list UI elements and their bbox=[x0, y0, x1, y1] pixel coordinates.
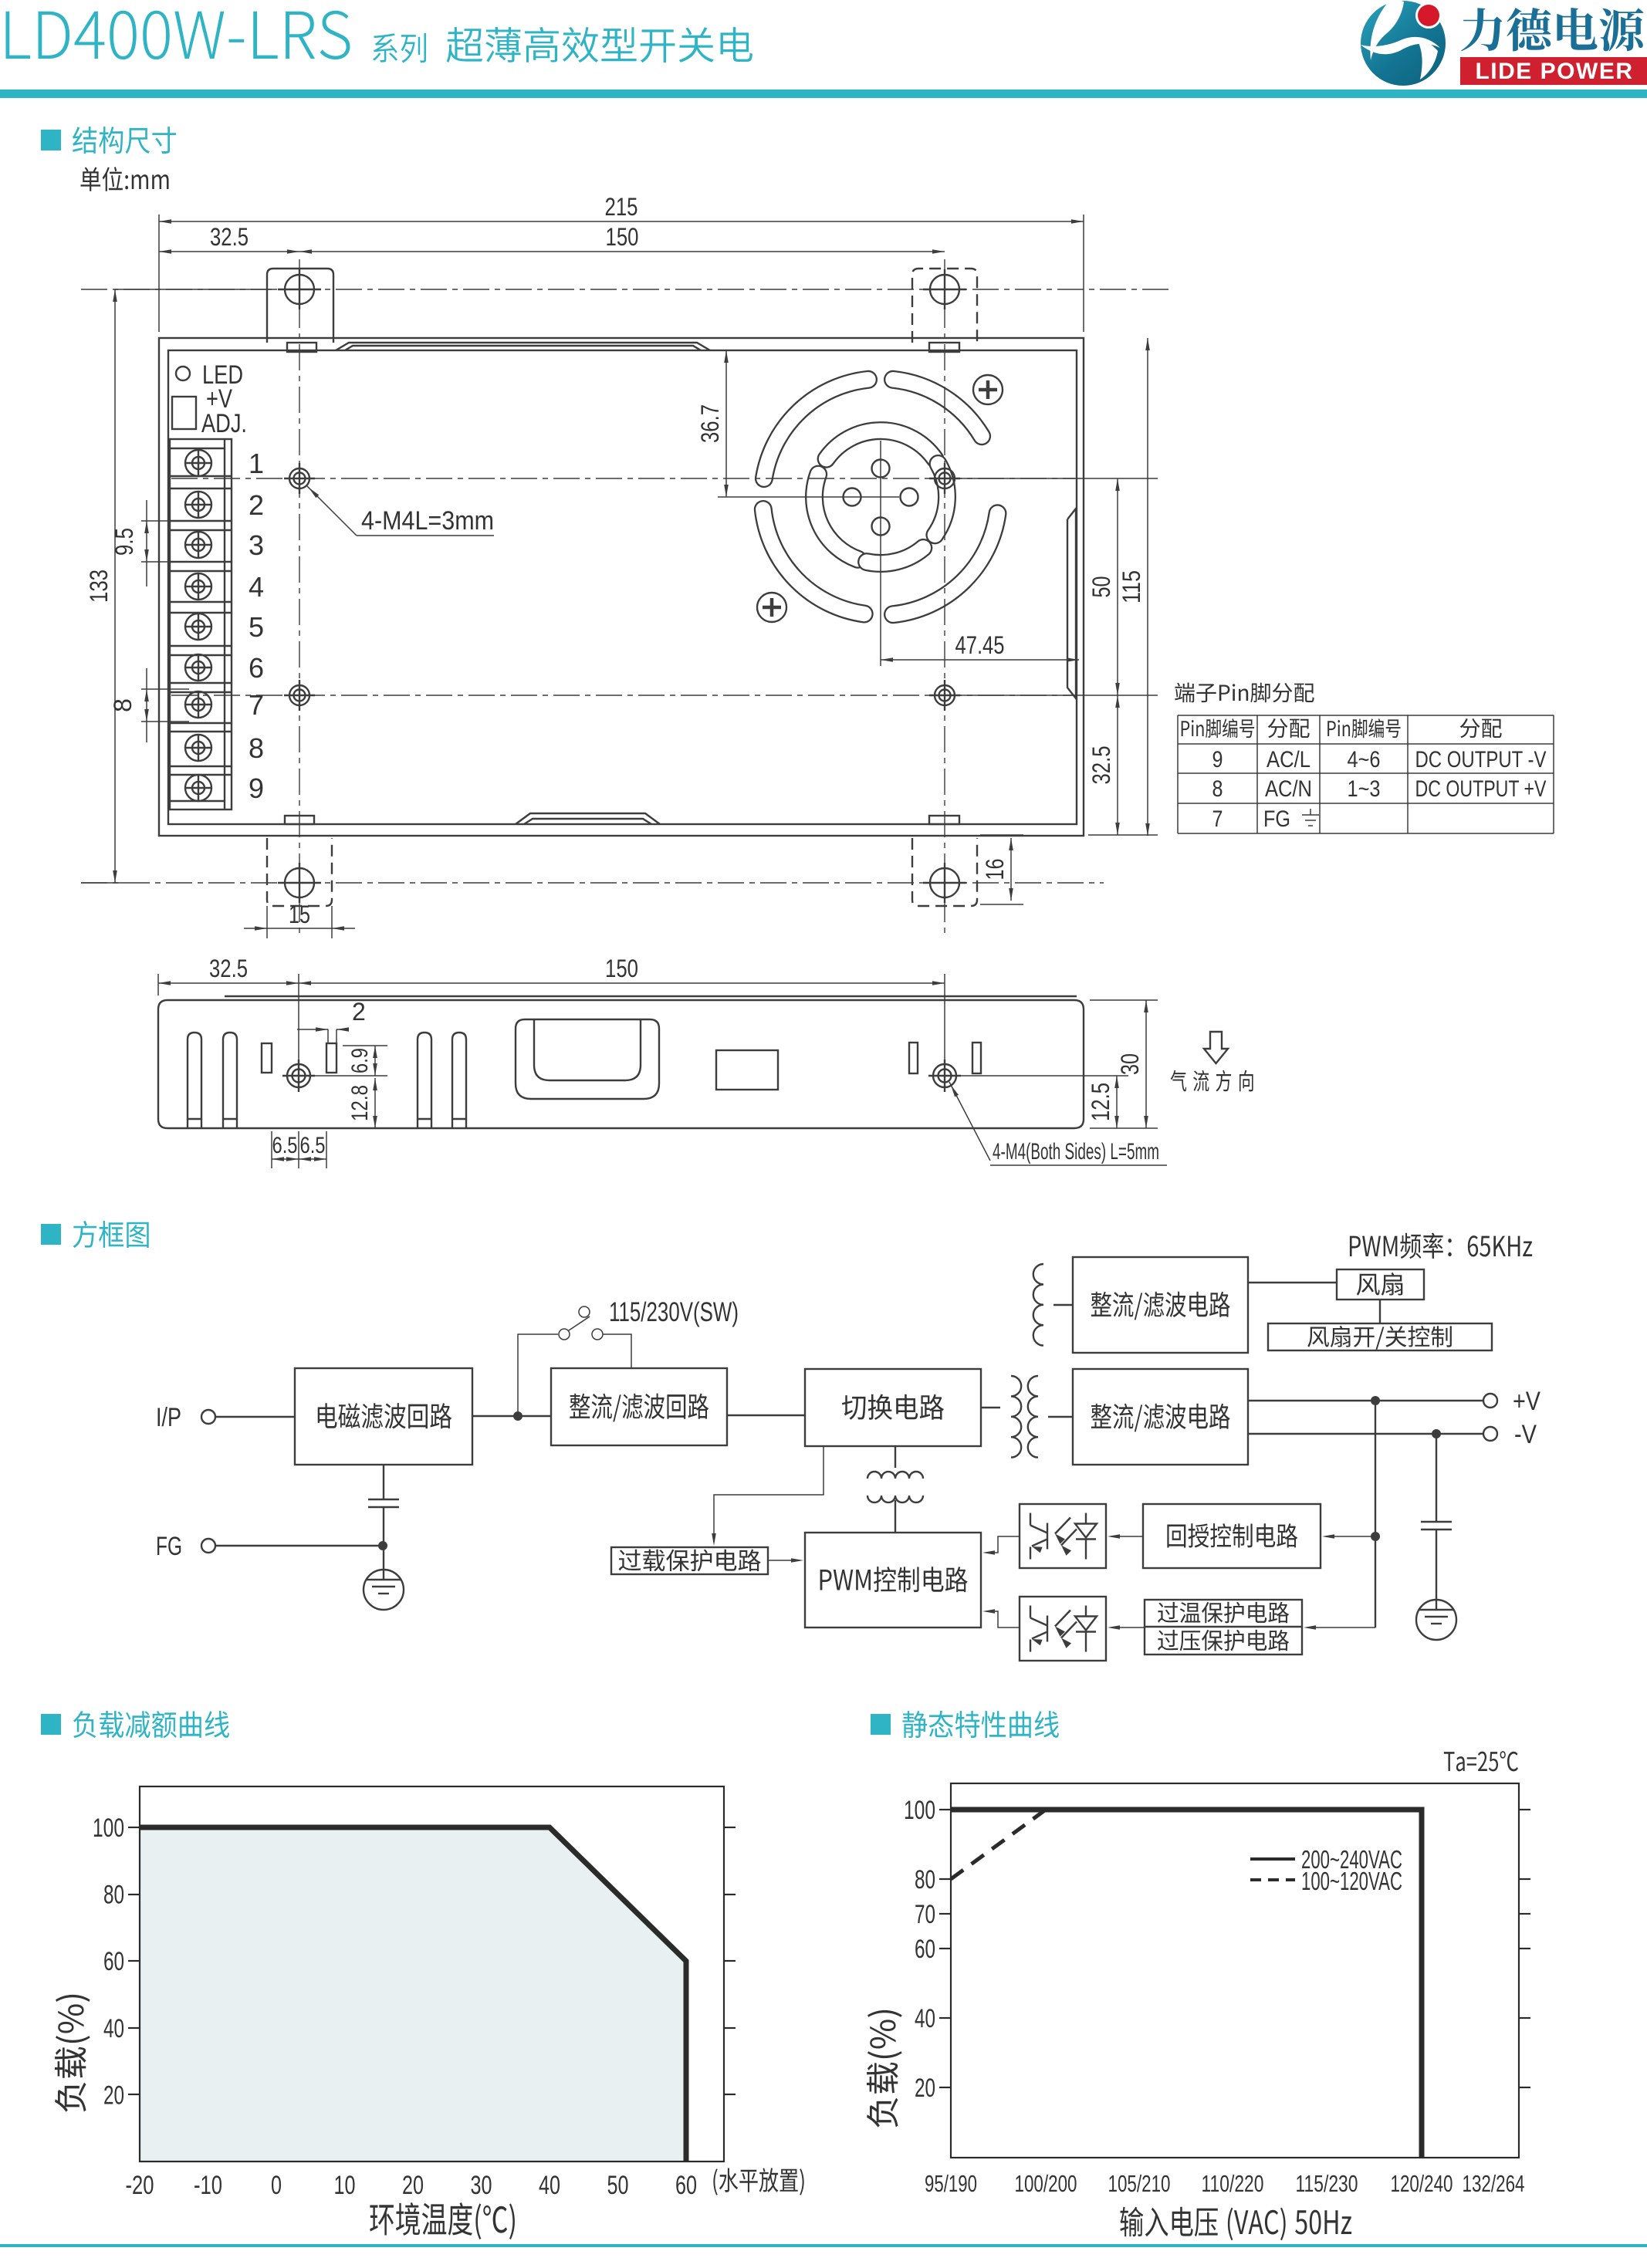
svg-text:40: 40 bbox=[103, 2014, 124, 2043]
svg-text:100~120VAC: 100~120VAC bbox=[1301, 1867, 1402, 1895]
svg-text:12.8: 12.8 bbox=[347, 1085, 373, 1121]
svg-text:30: 30 bbox=[471, 2171, 492, 2200]
svg-text:6.5: 6.5 bbox=[300, 1133, 326, 1158]
svg-text:60: 60 bbox=[915, 1935, 935, 1964]
svg-text:110/220: 110/220 bbox=[1202, 2170, 1264, 2197]
svg-text:20: 20 bbox=[915, 2074, 935, 2103]
svg-text:ADJ.: ADJ. bbox=[201, 409, 247, 438]
svg-text:AC/L: AC/L bbox=[1267, 747, 1310, 772]
svg-text:6.9: 6.9 bbox=[347, 1048, 373, 1073]
svg-text:100: 100 bbox=[93, 1813, 124, 1843]
svg-text:6.5: 6.5 bbox=[272, 1133, 298, 1158]
svg-text:20: 20 bbox=[402, 2171, 424, 2200]
svg-text:115: 115 bbox=[1118, 570, 1145, 603]
svg-text:132/264: 132/264 bbox=[1463, 2170, 1525, 2197]
svg-text:-10: -10 bbox=[194, 2171, 222, 2200]
svg-text:7: 7 bbox=[1212, 806, 1223, 832]
svg-text:20: 20 bbox=[103, 2080, 124, 2110]
svg-text:4-M4L=3mm: 4-M4L=3mm bbox=[361, 506, 494, 536]
svg-text:80: 80 bbox=[915, 1865, 935, 1895]
svg-text:4-M4(Both Sides) L=5mm: 4-M4(Both Sides) L=5mm bbox=[993, 1139, 1159, 1164]
svg-text:7: 7 bbox=[249, 689, 264, 721]
svg-text:120/240: 120/240 bbox=[1391, 2170, 1453, 2197]
svg-text:100/200: 100/200 bbox=[1015, 2170, 1077, 2197]
svg-text:50: 50 bbox=[607, 2171, 629, 2200]
svg-text:DC OUTPUT -V: DC OUTPUT -V bbox=[1415, 747, 1547, 772]
svg-text:50: 50 bbox=[1087, 576, 1115, 598]
svg-text:115/230V(SW): 115/230V(SW) bbox=[609, 1297, 739, 1327]
svg-text:40: 40 bbox=[915, 2004, 935, 2033]
svg-text:8: 8 bbox=[1212, 776, 1223, 802]
svg-text:4~6: 4~6 bbox=[1348, 747, 1381, 772]
svg-text:80: 80 bbox=[103, 1881, 124, 1910]
svg-text:2: 2 bbox=[352, 998, 366, 1026]
svg-text:-20: -20 bbox=[126, 2171, 154, 2200]
svg-text:8: 8 bbox=[109, 698, 137, 712]
svg-text:5: 5 bbox=[249, 611, 264, 643]
svg-text:9.5: 9.5 bbox=[110, 528, 138, 556]
svg-text:215: 215 bbox=[605, 193, 638, 221]
svg-text:2: 2 bbox=[249, 489, 264, 521]
svg-text:40: 40 bbox=[539, 2171, 560, 2200]
svg-text:60: 60 bbox=[103, 1947, 124, 1976]
svg-text:32.5: 32.5 bbox=[1087, 746, 1115, 785]
svg-text:32.5: 32.5 bbox=[209, 955, 248, 982]
svg-text:AC/N: AC/N bbox=[1265, 776, 1312, 802]
svg-text:-V: -V bbox=[1514, 1420, 1537, 1449]
svg-text:32.5: 32.5 bbox=[210, 223, 249, 251]
svg-text:1~3: 1~3 bbox=[1348, 776, 1381, 802]
svg-text:FG: FG bbox=[156, 1532, 182, 1561]
svg-text:47.45: 47.45 bbox=[955, 631, 1005, 659]
svg-text:36.7: 36.7 bbox=[696, 404, 724, 443]
svg-text:60: 60 bbox=[675, 2171, 697, 2200]
svg-text:95/190: 95/190 bbox=[925, 2170, 977, 2197]
svg-text:8: 8 bbox=[249, 732, 264, 764]
svg-text:9: 9 bbox=[1212, 747, 1223, 772]
svg-text:70: 70 bbox=[915, 1900, 935, 1929]
svg-text:15: 15 bbox=[289, 901, 310, 928]
svg-text:+V: +V bbox=[1513, 1387, 1540, 1416]
svg-text:30: 30 bbox=[1116, 1053, 1144, 1075]
svg-text:FG: FG bbox=[1263, 806, 1290, 832]
svg-text:1: 1 bbox=[249, 448, 264, 479]
svg-text:6: 6 bbox=[249, 652, 264, 684]
svg-text:150: 150 bbox=[605, 955, 638, 982]
svg-text:I/P: I/P bbox=[156, 1403, 181, 1432]
svg-text:100: 100 bbox=[904, 1796, 935, 1825]
svg-text:9: 9 bbox=[249, 772, 264, 804]
svg-text:105/210: 105/210 bbox=[1108, 2170, 1171, 2197]
svg-text:3: 3 bbox=[249, 529, 264, 561]
svg-text:DC OUTPUT +V: DC OUTPUT +V bbox=[1415, 776, 1547, 802]
svg-text:133: 133 bbox=[85, 570, 113, 603]
svg-text:0: 0 bbox=[271, 2171, 282, 2200]
svg-text:12.5: 12.5 bbox=[1087, 1083, 1114, 1121]
svg-text:150: 150 bbox=[606, 223, 639, 251]
svg-text:4: 4 bbox=[249, 571, 264, 603]
svg-text:10: 10 bbox=[334, 2171, 356, 2200]
svg-text:LIDE POWER: LIDE POWER bbox=[1475, 59, 1633, 84]
svg-text:16: 16 bbox=[981, 859, 1009, 880]
svg-text:115/230: 115/230 bbox=[1296, 2170, 1358, 2197]
